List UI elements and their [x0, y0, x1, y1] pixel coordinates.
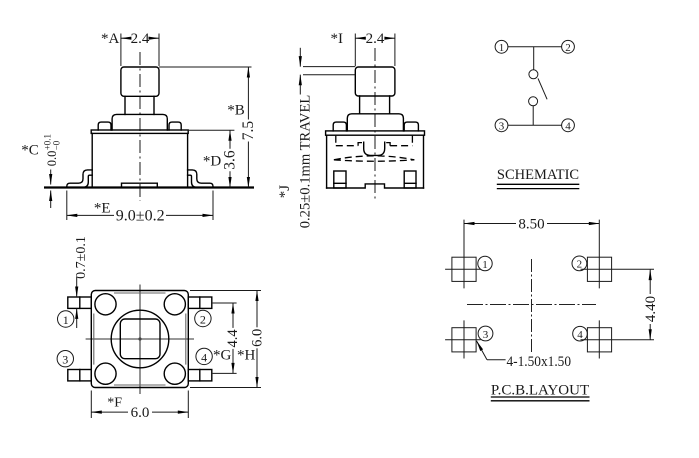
svg-text:4.4: 4.4 — [225, 329, 241, 348]
svg-text:3: 3 — [483, 329, 489, 341]
svg-text:SCHEMATIC: SCHEMATIC — [497, 167, 579, 183]
svg-text:*H: *H — [237, 348, 256, 364]
svg-text:4-1.50x1.50: 4-1.50x1.50 — [507, 354, 572, 370]
svg-text:*C: *C — [21, 143, 39, 159]
svg-text:*A: *A — [101, 31, 120, 47]
svg-text:*F: *F — [107, 396, 122, 411]
svg-text:4: 4 — [201, 350, 207, 364]
svg-text:0.0: 0.0 — [45, 151, 59, 167]
svg-text:6.0: 6.0 — [249, 329, 265, 347]
svg-text:2: 2 — [565, 42, 571, 54]
svg-text:3: 3 — [499, 121, 505, 133]
svg-text:*E: *E — [94, 200, 111, 216]
svg-text:4.40: 4.40 — [643, 296, 659, 322]
svg-text:3.6: 3.6 — [222, 150, 239, 170]
svg-text:2.4: 2.4 — [366, 31, 385, 47]
svg-text:*D: *D — [203, 154, 222, 170]
svg-text:−0: −0 — [52, 140, 62, 150]
svg-text:*B: *B — [227, 103, 245, 119]
svg-text:3: 3 — [62, 353, 68, 367]
svg-text:*G: *G — [213, 348, 232, 364]
svg-text:8.50: 8.50 — [518, 216, 544, 232]
svg-text:6.0: 6.0 — [131, 405, 150, 421]
svg-text:0.25±0.1mm TRAVEL: 0.25±0.1mm TRAVEL — [297, 95, 313, 229]
svg-text:1: 1 — [63, 313, 69, 327]
svg-text:7.5: 7.5 — [240, 121, 257, 141]
svg-text:*J: *J — [277, 185, 293, 199]
svg-text:2: 2 — [200, 313, 206, 327]
svg-text:4: 4 — [565, 121, 571, 133]
svg-text:4: 4 — [577, 329, 583, 341]
svg-text:0.7±0.1: 0.7±0.1 — [74, 236, 89, 279]
svg-text:P.C.B.LAYOUT: P.C.B.LAYOUT — [491, 382, 589, 398]
svg-text:9.0±0.2: 9.0±0.2 — [116, 207, 165, 224]
svg-text:1: 1 — [482, 259, 488, 271]
svg-text:*I: *I — [330, 31, 343, 47]
svg-text:2.4: 2.4 — [131, 31, 150, 47]
svg-text:2: 2 — [577, 259, 583, 271]
svg-text:1: 1 — [499, 42, 505, 54]
